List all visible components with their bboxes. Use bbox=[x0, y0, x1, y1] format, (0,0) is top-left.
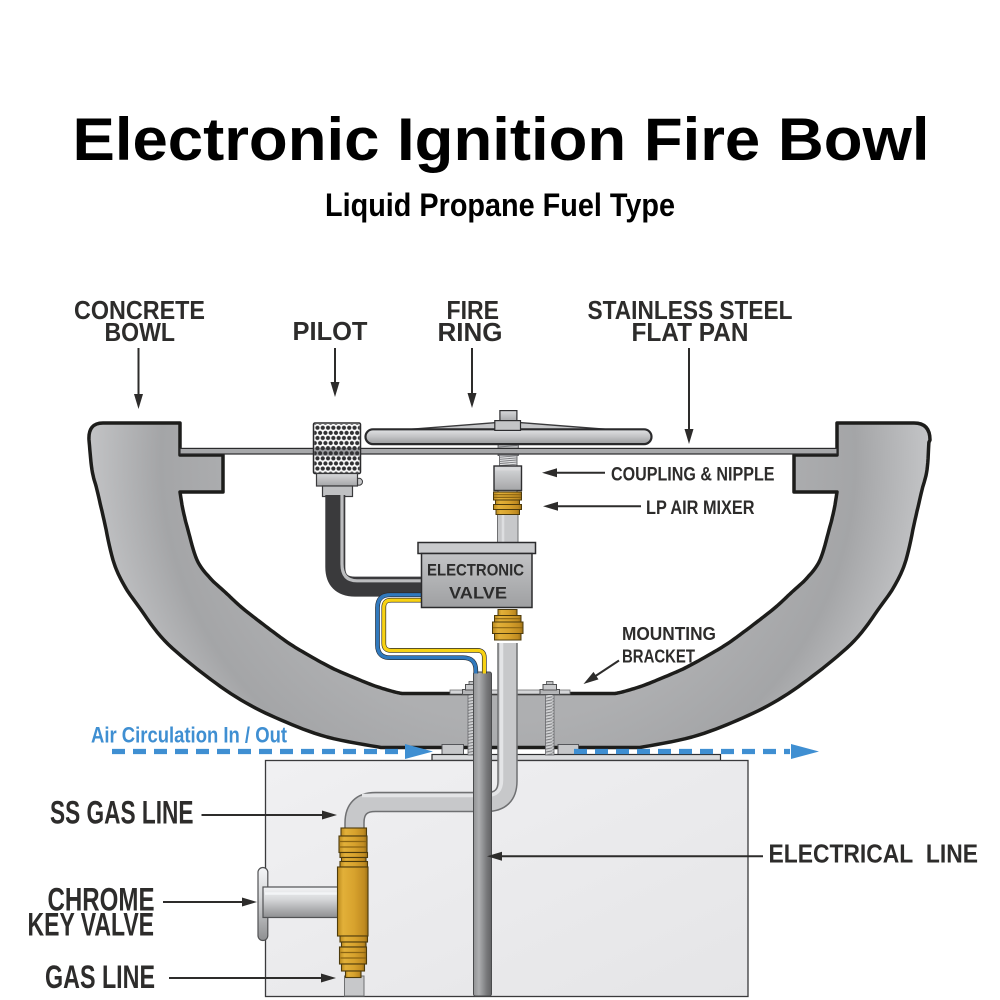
svg-text:SS GAS LINE: SS GAS LINE bbox=[50, 795, 194, 831]
svg-text:ELECTRONIC: ELECTRONIC bbox=[427, 561, 524, 580]
svg-text:RING: RING bbox=[438, 317, 503, 347]
svg-text:GAS LINE: GAS LINE bbox=[45, 959, 155, 995]
svg-text:ELECTRICAL LINE: ELECTRICAL LINE bbox=[769, 841, 979, 869]
svg-text:KEY VALVE: KEY VALVE bbox=[28, 907, 155, 943]
svg-text:MOUNTING: MOUNTING bbox=[622, 624, 716, 644]
svg-text:BOWL: BOWL bbox=[105, 317, 176, 347]
svg-text:COUPLING & NIPPLE: COUPLING & NIPPLE bbox=[611, 463, 775, 485]
svg-text:PILOT: PILOT bbox=[293, 316, 368, 346]
svg-text:BRACKET: BRACKET bbox=[622, 647, 695, 667]
svg-text:Liquid Propane Fuel Type: Liquid Propane Fuel Type bbox=[325, 187, 675, 223]
svg-text:LP AIR MIXER: LP AIR MIXER bbox=[646, 497, 755, 519]
svg-text:Air Circulation In / Out: Air Circulation In / Out bbox=[91, 723, 288, 748]
svg-text:FLAT PAN: FLAT PAN bbox=[632, 317, 749, 347]
svg-text:VALVE: VALVE bbox=[449, 584, 507, 603]
svg-text:Electronic Ignition Fire Bowl: Electronic Ignition Fire Bowl bbox=[73, 106, 930, 173]
